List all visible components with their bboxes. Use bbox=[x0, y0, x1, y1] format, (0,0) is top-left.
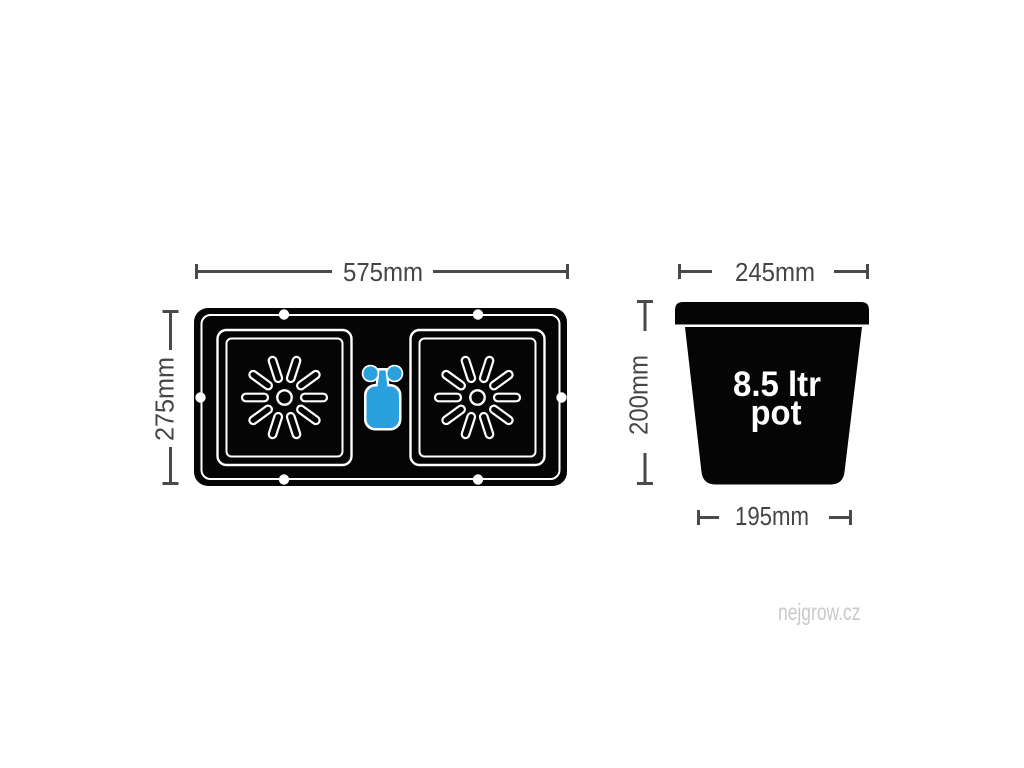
svg-text:200mm: 200mm bbox=[626, 355, 654, 435]
svg-text:245mm: 245mm bbox=[735, 259, 815, 287]
svg-text:275mm: 275mm bbox=[152, 357, 180, 441]
svg-text:195mm: 195mm bbox=[735, 503, 809, 531]
svg-text:nejgrow.cz: nejgrow.cz bbox=[778, 599, 861, 625]
svg-text:575mm: 575mm bbox=[343, 259, 423, 287]
svg-text:pot: pot bbox=[751, 394, 802, 433]
